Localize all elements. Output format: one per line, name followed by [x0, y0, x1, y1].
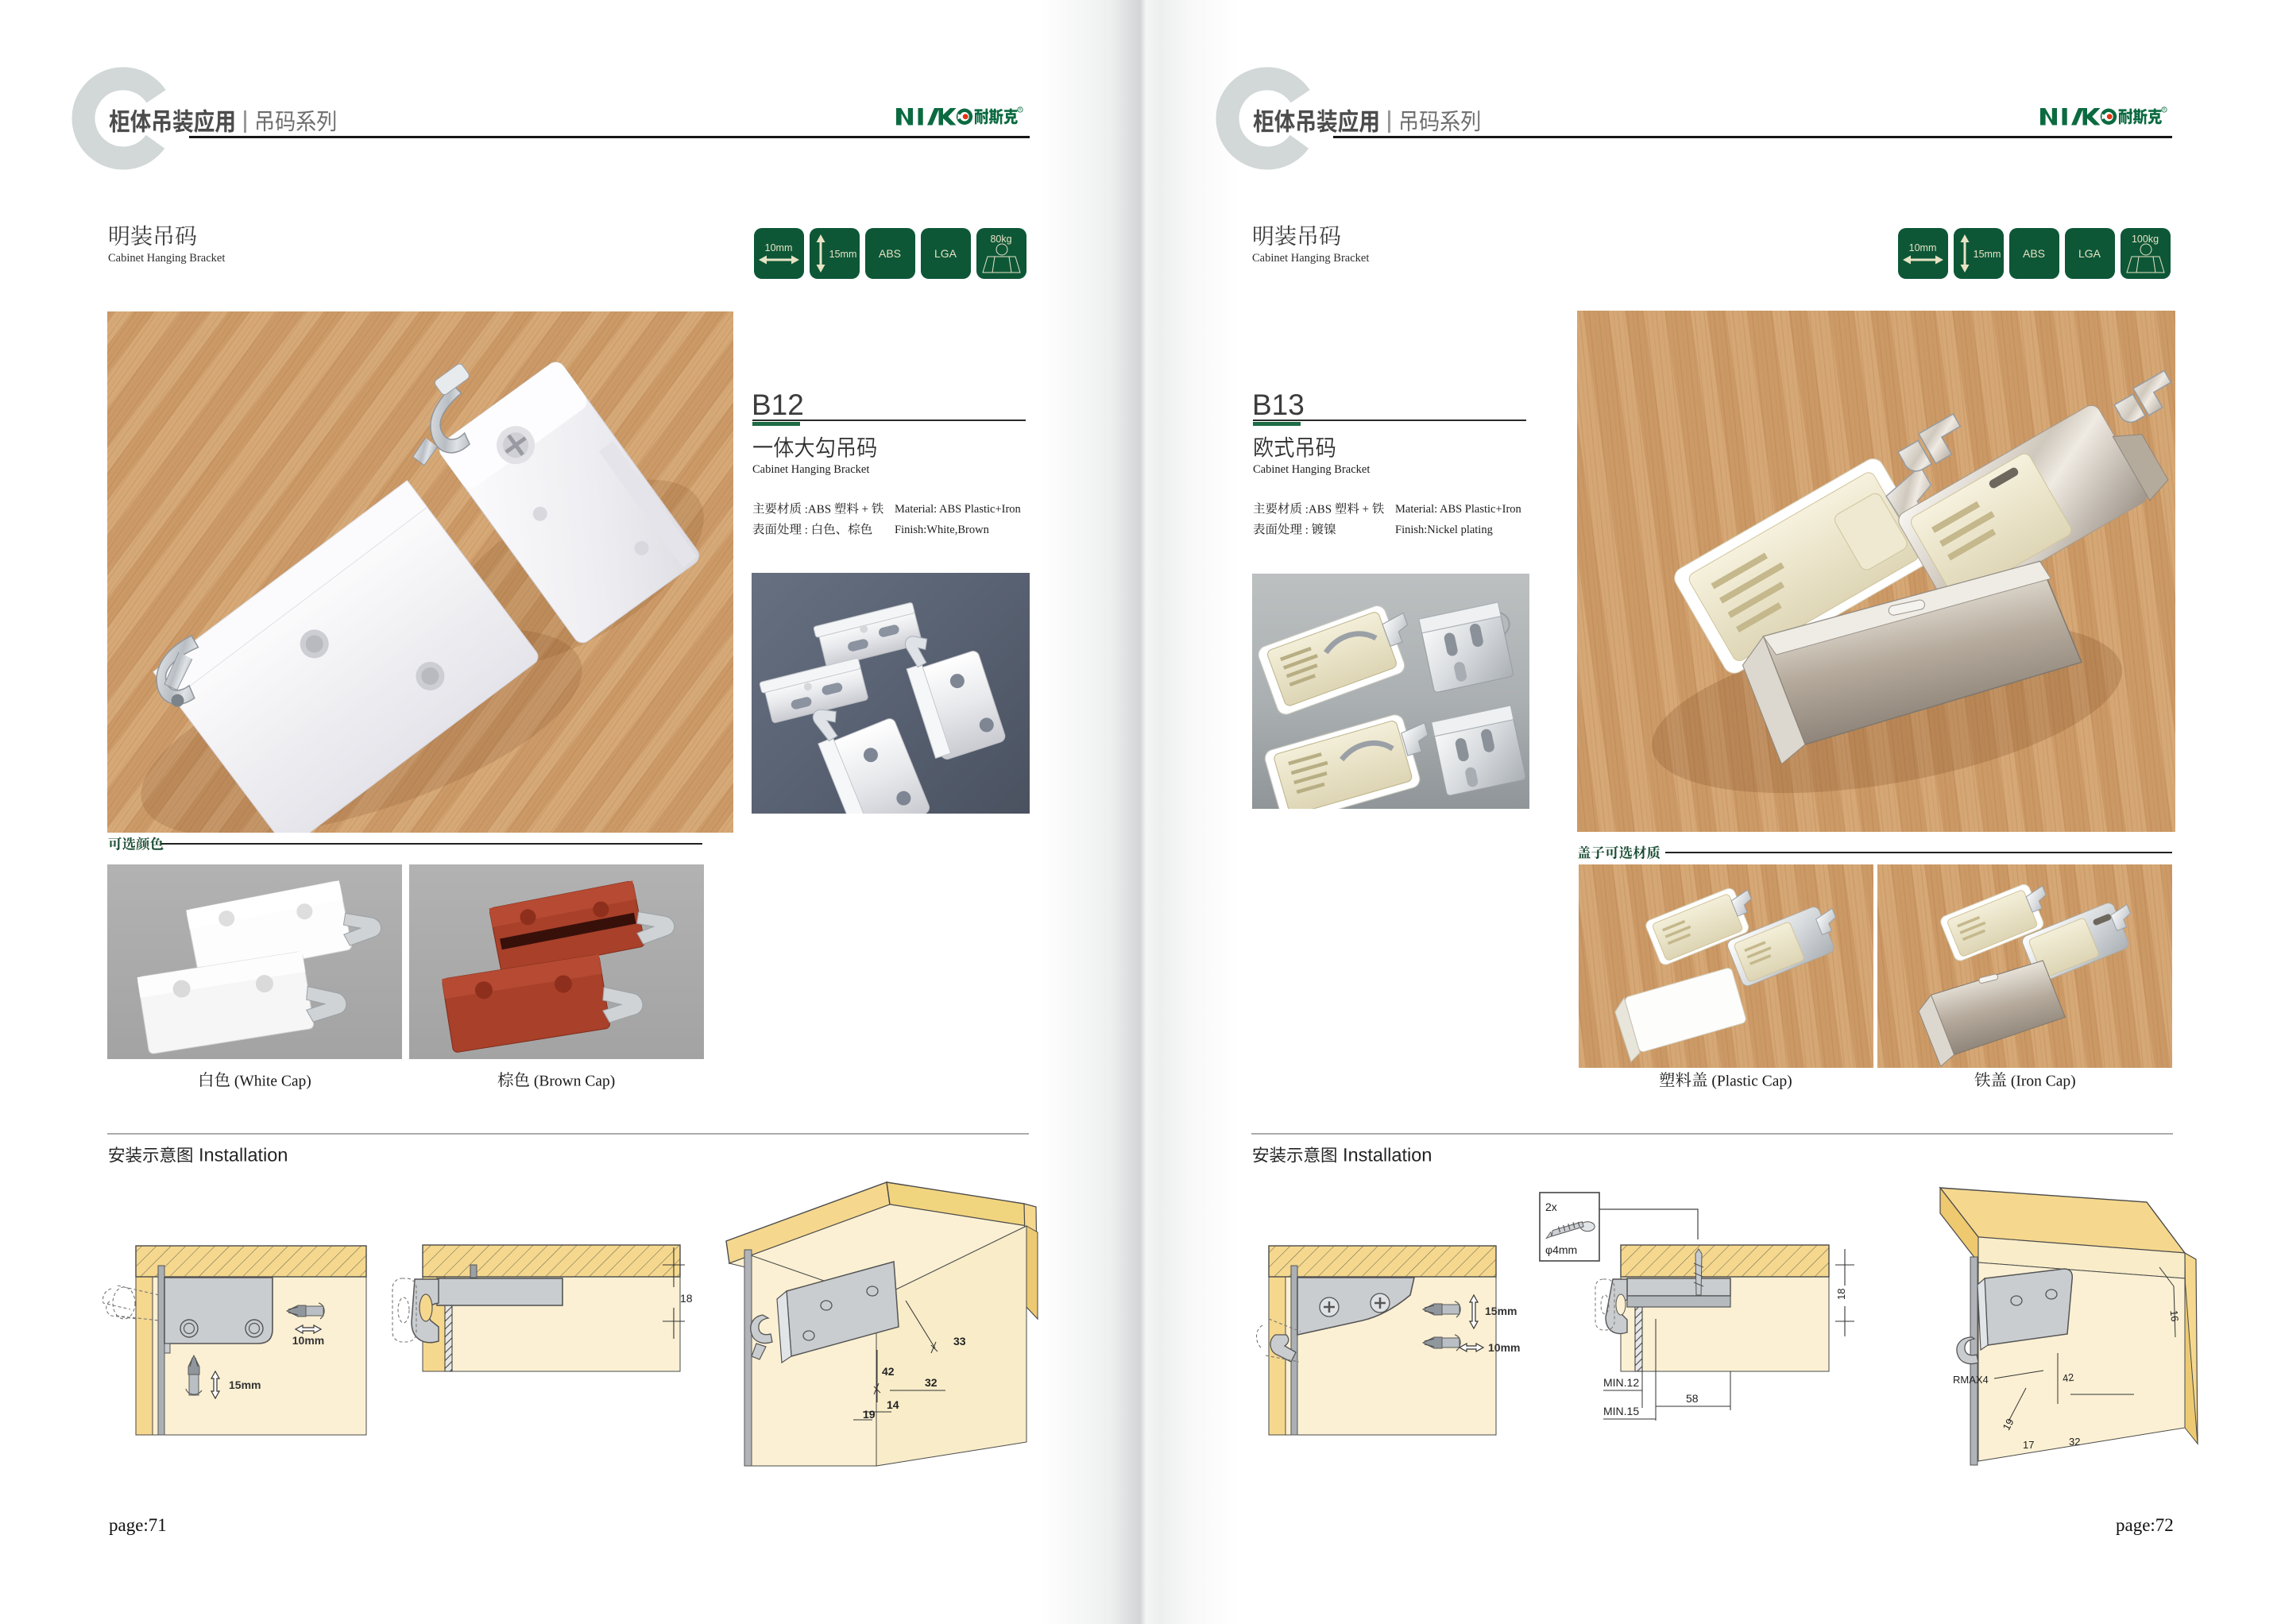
- svg-text:33: 33: [953, 1335, 966, 1348]
- svg-text:ABS: ABS: [2023, 247, 2045, 260]
- svg-text:18: 18: [680, 1292, 693, 1305]
- svg-text:R: R: [2163, 108, 2166, 112]
- svg-text:10mm: 10mm: [292, 1334, 324, 1347]
- svg-text:φ4mm: φ4mm: [1545, 1243, 1577, 1256]
- svg-text:15mm: 15mm: [829, 249, 857, 260]
- svg-text:ABS: ABS: [879, 247, 901, 260]
- svg-text:R: R: [1019, 108, 1022, 112]
- svg-text:58: 58: [1686, 1392, 1699, 1405]
- svg-text:32: 32: [925, 1376, 938, 1389]
- svg-text:MIN.15: MIN.15: [1603, 1405, 1639, 1417]
- svg-text:LGA: LGA: [2078, 247, 2101, 260]
- svg-text:MIN.12: MIN.12: [1603, 1376, 1639, 1389]
- svg-text:RMAX4: RMAX4: [1953, 1374, 1989, 1386]
- svg-text:18: 18: [1835, 1289, 1847, 1300]
- svg-text:10mm: 10mm: [1488, 1341, 1520, 1354]
- svg-text:14: 14: [887, 1398, 899, 1411]
- svg-text:15mm: 15mm: [1485, 1305, 1517, 1317]
- svg-text:32: 32: [2069, 1436, 2080, 1448]
- svg-text:42: 42: [882, 1365, 895, 1378]
- svg-text:LGA: LGA: [934, 247, 957, 260]
- svg-text:17: 17: [2023, 1439, 2034, 1451]
- svg-text:19: 19: [863, 1408, 876, 1421]
- svg-text:100kg: 100kg: [2132, 234, 2159, 245]
- svg-text:16: 16: [2168, 1309, 2181, 1322]
- svg-text:2x: 2x: [1545, 1201, 1557, 1213]
- svg-text:15mm: 15mm: [1974, 249, 2001, 260]
- svg-text:10mm: 10mm: [765, 242, 793, 253]
- svg-text:10mm: 10mm: [1909, 242, 1937, 253]
- svg-text:80kg: 80kg: [990, 234, 1011, 245]
- svg-text:15mm: 15mm: [229, 1378, 261, 1391]
- svg-text:42: 42: [2062, 1371, 2074, 1385]
